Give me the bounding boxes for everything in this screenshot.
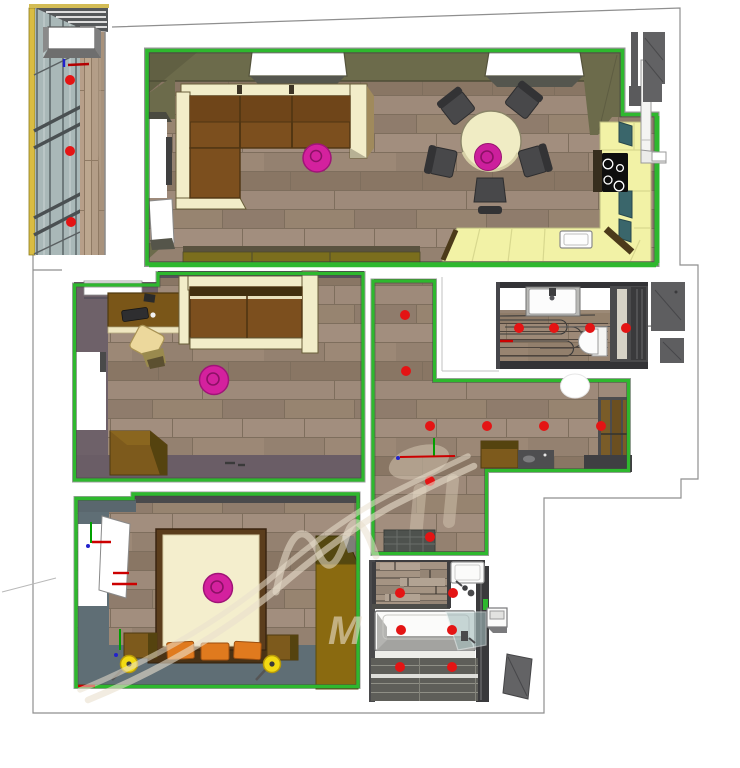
svg-text:M: M: [328, 609, 363, 653]
